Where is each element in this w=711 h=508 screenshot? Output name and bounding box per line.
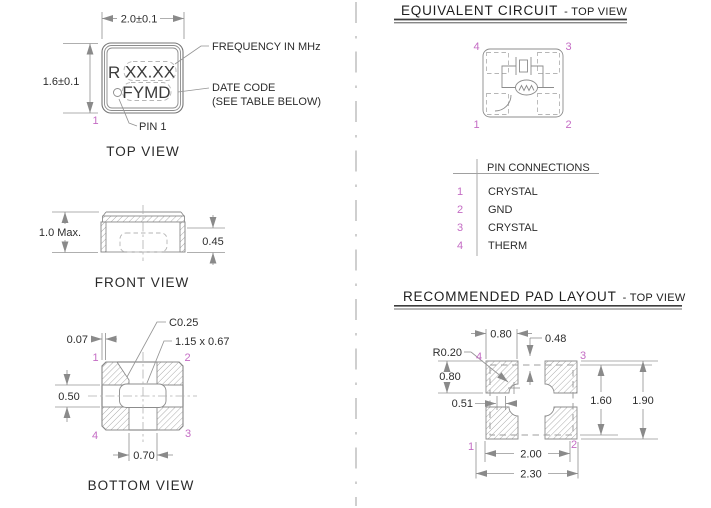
pin-number-1: 1 (473, 119, 479, 131)
callout-frequency-text: FREQUENCY IN MHz (212, 41, 321, 53)
right-wall-hatch (180, 222, 185, 252)
pin-number-1: 1 (92, 352, 98, 364)
table-header: PIN CONNECTIONS (487, 162, 590, 174)
pin-number-4: 4 (92, 430, 98, 442)
pad-layout-section: RECOMMENDED PAD LAYOUT- TOP VIEW 0.80 0.… (394, 289, 686, 481)
dim-package-height: 1.6±0.1 (43, 44, 98, 114)
callout-cavity-text: 1.15 x 0.67 (175, 336, 229, 348)
pin1-dot (114, 89, 122, 97)
pin-number-1: 1 (468, 441, 474, 453)
dim-outer-height-value: 1.90 (632, 395, 653, 407)
pin-number-3: 3 (185, 428, 191, 440)
technical-drawing: R XX.XX FYMD 2.0±0.1 1.6±0.1 FREQUENCY I… (0, 0, 711, 508)
dim-horizontal-gap: 0.70 (113, 433, 173, 462)
dim-width-value: 2.0±0.1 (121, 14, 158, 26)
pin-number-4: 4 (476, 351, 482, 363)
pin-number-4: 4 (473, 41, 479, 53)
pin-number-2: 2 (565, 119, 571, 131)
table-row: 1 CRYSTAL (457, 186, 538, 198)
row-pin-number: 3 (457, 222, 463, 234)
lid-hatch (103, 216, 185, 222)
pin-number-2: 2 (184, 352, 190, 364)
row-pin-number: 1 (457, 186, 463, 198)
marking-frequency: XX.XX (125, 63, 175, 82)
pin-connections-table: PIN CONNECTIONS 1 CRYSTAL 2 GND 3 CRYSTA… (453, 159, 599, 256)
dim-height-value: 1.6±0.1 (43, 76, 80, 88)
dim-inner-width-value: 2.00 (520, 449, 541, 461)
table-row: 4 THERM (457, 240, 527, 252)
callout-datecode: DATE CODE (SEE TABLE BELOW) (178, 82, 321, 108)
front-view-label: FRONT VIEW (95, 275, 190, 290)
row-pin-function: CRYSTAL (488, 222, 538, 234)
dim-package-width: 2.0±0.1 (102, 12, 184, 39)
bottom-view-label: BOTTOM VIEW (88, 478, 195, 493)
pin-number-3: 3 (580, 350, 586, 362)
callout-datecode-line2: (SEE TABLE BELOW) (212, 96, 321, 108)
marking-prefix: R (108, 63, 120, 82)
dim-terminal-height-value: 0.45 (202, 236, 223, 248)
datasheet-page: R XX.XX FYMD 2.0±0.1 1.6±0.1 FREQUENCY I… (0, 0, 711, 508)
pad-3 (157, 407, 183, 430)
table-row: 2 GND (457, 204, 513, 216)
marking-datecode: FYMD (122, 83, 170, 102)
dim-pad-height-value: 0.80 (439, 371, 460, 383)
dim-notch-value: 0.48 (545, 333, 566, 345)
dim-inner-height-value: 1.60 (590, 395, 611, 407)
pin-number-3: 3 (565, 41, 571, 53)
left-wall-hatch (101, 222, 106, 252)
dim-outer-width-value: 2.30 (520, 469, 541, 481)
row-pin-function: GND (488, 204, 513, 216)
pad-3-land (545, 361, 577, 393)
callout-frequency: FREQUENCY IN MHz (175, 41, 321, 64)
equivalent-circuit-section: EQUIVALENT CIRCUIT- TOP VIEW 4 3 1 2 (394, 3, 627, 131)
row-pin-function: THERM (488, 240, 527, 252)
pin-number-2: 2 (571, 439, 577, 451)
callout-datecode-line1: DATE CODE (212, 82, 275, 94)
dim-pad-height: 0.80 (438, 361, 483, 393)
pad-2-land (545, 407, 577, 439)
dim-pad-width-value: 0.80 (490, 329, 511, 341)
callout-pin1-text: PIN 1 (139, 121, 167, 133)
bottom-view: 0.07 0.50 0.70 C0.25 1.15 x 0.67 1 2 4 3 (55, 317, 229, 493)
lid-top-line (103, 212, 184, 216)
pad-layout-title: RECOMMENDED PAD LAYOUT- TOP VIEW (403, 289, 686, 304)
thermistor-symbol (516, 80, 538, 95)
equivalent-circuit-title: EQUIVALENT CIRCUIT- TOP VIEW (401, 3, 627, 18)
dim-inner-width: 2.00 (485, 441, 570, 462)
dim-height-max: 1.0 Max. (39, 212, 99, 253)
pin-number-1: 1 (92, 115, 98, 127)
dim-horizontal-gap-value: 0.70 (133, 450, 154, 462)
top-view: R XX.XX FYMD 2.0±0.1 1.6±0.1 FREQUENCY I… (43, 12, 321, 159)
front-view: 1.0 Max. 0.45 FRONT VIEW (39, 205, 225, 290)
pad-1-land (486, 407, 518, 439)
top-view-label: TOP VIEW (106, 144, 180, 159)
pad-2 (157, 362, 183, 385)
row-pin-number: 2 (457, 204, 463, 216)
dim-vertical-gap-value: 0.50 (58, 391, 79, 403)
callout-chamfer-text: C0.25 (169, 317, 198, 329)
dim-corner-radius-value: R0.20 (433, 347, 462, 359)
row-pin-function: CRYSTAL (488, 186, 538, 198)
dim-edge-clearance-value: 0.07 (67, 334, 88, 346)
dim-terminal-height: 0.45 (187, 215, 225, 265)
row-pin-number: 4 (457, 240, 463, 252)
dim-height-max-value: 1.0 Max. (39, 227, 81, 239)
table-row: 3 CRYSTAL (457, 222, 538, 234)
pad-4 (102, 407, 129, 430)
dim-notch-offset-value: 0.51 (452, 398, 473, 410)
